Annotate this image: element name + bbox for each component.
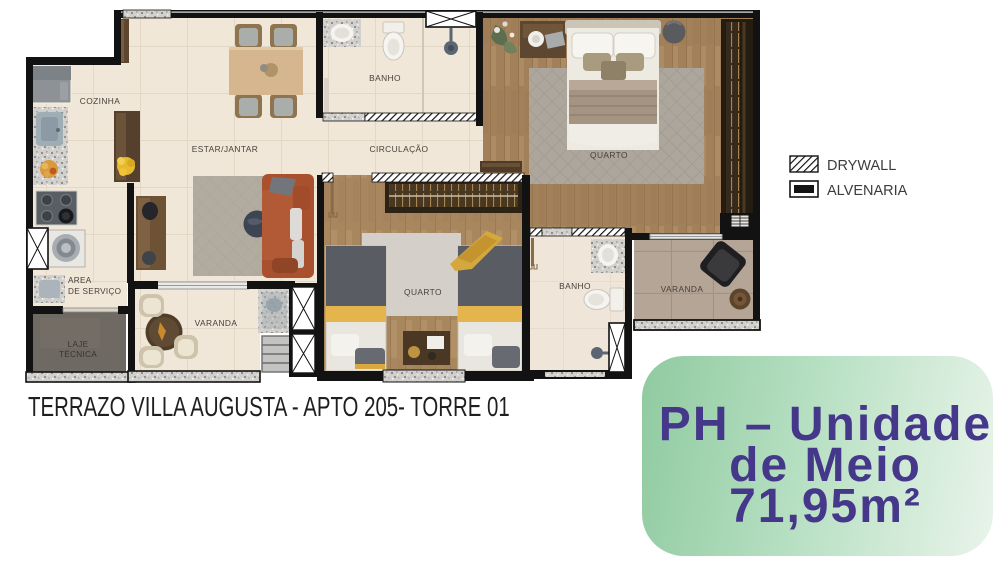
svg-text:VARANDA: VARANDA [195,318,238,328]
svg-text:QUARTO: QUARTO [590,150,628,160]
svg-text:ALVENARIA: ALVENARIA [827,183,908,199]
svg-text:LAJE: LAJE [68,340,89,349]
svg-text:ESTAR/JANTAR: ESTAR/JANTAR [192,144,258,154]
svg-text:CIRCULAÇÃO: CIRCULAÇÃO [370,144,429,154]
svg-text:COZINHA: COZINHA [80,96,121,106]
svg-text:BANHO: BANHO [559,281,591,291]
svg-text:DRYWALL: DRYWALL [827,158,896,174]
svg-text:BANHO: BANHO [369,73,401,83]
svg-text:DE SERVIÇO: DE SERVIÇO [68,287,121,296]
svg-text:QUARTO: QUARTO [404,287,442,297]
svg-text:VARANDA: VARANDA [661,284,704,294]
svg-text:TÉCNICA: TÉCNICA [59,349,97,359]
svg-text:AREA: AREA [68,276,92,285]
